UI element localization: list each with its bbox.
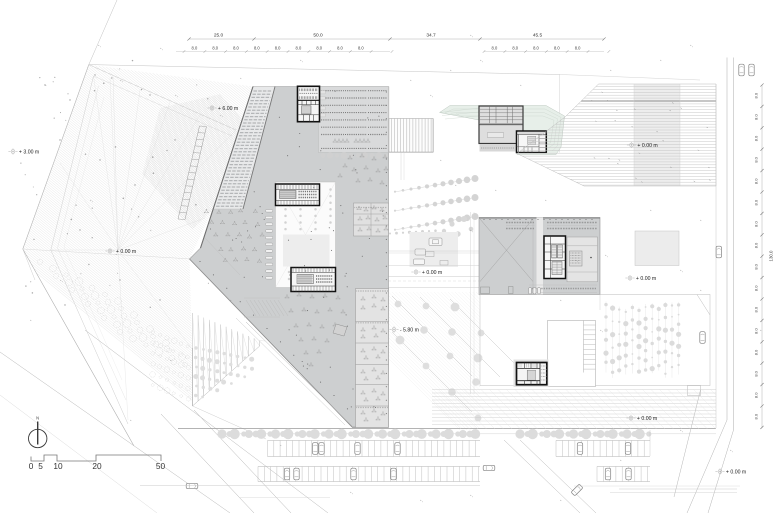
svg-text:8.0: 8.0 — [275, 46, 281, 51]
svg-text:8.0: 8.0 — [254, 46, 260, 51]
svg-text:8.0: 8.0 — [754, 413, 759, 419]
svg-text:20: 20 — [92, 461, 102, 471]
svg-text:8.0: 8.0 — [754, 285, 759, 291]
svg-text:8.0: 8.0 — [754, 156, 759, 162]
svg-text:8.0: 8.0 — [358, 46, 364, 51]
svg-text:8.0: 8.0 — [754, 392, 759, 398]
svg-text:8.0: 8.0 — [754, 370, 759, 376]
svg-text:8.0: 8.0 — [492, 46, 498, 51]
svg-text:+ 3.00 m: + 3.00 m — [19, 149, 39, 155]
svg-text:8.0: 8.0 — [754, 92, 759, 98]
svg-text:8.0: 8.0 — [533, 46, 539, 51]
svg-text:8.0: 8.0 — [754, 242, 759, 248]
svg-text:8.0: 8.0 — [754, 221, 759, 227]
svg-text:10: 10 — [53, 461, 63, 471]
svg-text:8.0: 8.0 — [754, 328, 759, 334]
svg-text:34.7: 34.7 — [426, 33, 436, 39]
svg-text:8.0: 8.0 — [316, 46, 322, 51]
svg-text:8.0: 8.0 — [192, 46, 198, 51]
svg-text:5: 5 — [38, 461, 43, 471]
svg-text:0: 0 — [29, 461, 34, 471]
svg-text:8.0: 8.0 — [575, 46, 581, 51]
svg-text:8.0: 8.0 — [554, 46, 560, 51]
svg-text:8.0: 8.0 — [212, 46, 218, 51]
svg-text:8.0: 8.0 — [337, 46, 343, 51]
svg-text:50: 50 — [156, 461, 166, 471]
svg-text:8.0: 8.0 — [512, 46, 518, 51]
svg-text:8.0: 8.0 — [754, 306, 759, 312]
svg-text:+ 0.00 m: + 0.00 m — [636, 276, 656, 282]
svg-text:8.0: 8.0 — [233, 46, 239, 51]
svg-text:- 5.80 m: - 5.80 m — [400, 327, 419, 333]
svg-text:8.0: 8.0 — [754, 178, 759, 184]
svg-text:8.0: 8.0 — [754, 349, 759, 355]
svg-text:+ 0.00 m: + 0.00 m — [637, 143, 657, 149]
svg-text:N: N — [36, 416, 39, 421]
svg-text:+ 0.00 m: + 0.00 m — [422, 270, 442, 276]
svg-text:8.0: 8.0 — [754, 114, 759, 120]
svg-text:130.0: 130.0 — [769, 250, 774, 262]
svg-text:+ 0.00 m: + 0.00 m — [726, 469, 746, 475]
svg-text:8.0: 8.0 — [754, 263, 759, 269]
svg-text:25.0: 25.0 — [214, 33, 224, 39]
svg-text:+ 6.00 m: + 6.00 m — [218, 106, 238, 112]
svg-text:50.0: 50.0 — [313, 33, 323, 39]
svg-text:8.0: 8.0 — [754, 199, 759, 205]
svg-text:8.0: 8.0 — [754, 135, 759, 141]
svg-text:45.5: 45.5 — [533, 33, 543, 39]
svg-text:+ 0.00 m: + 0.00 m — [116, 249, 136, 255]
svg-text:+ 0.00 m: + 0.00 m — [637, 416, 657, 422]
svg-text:8.0: 8.0 — [296, 46, 302, 51]
